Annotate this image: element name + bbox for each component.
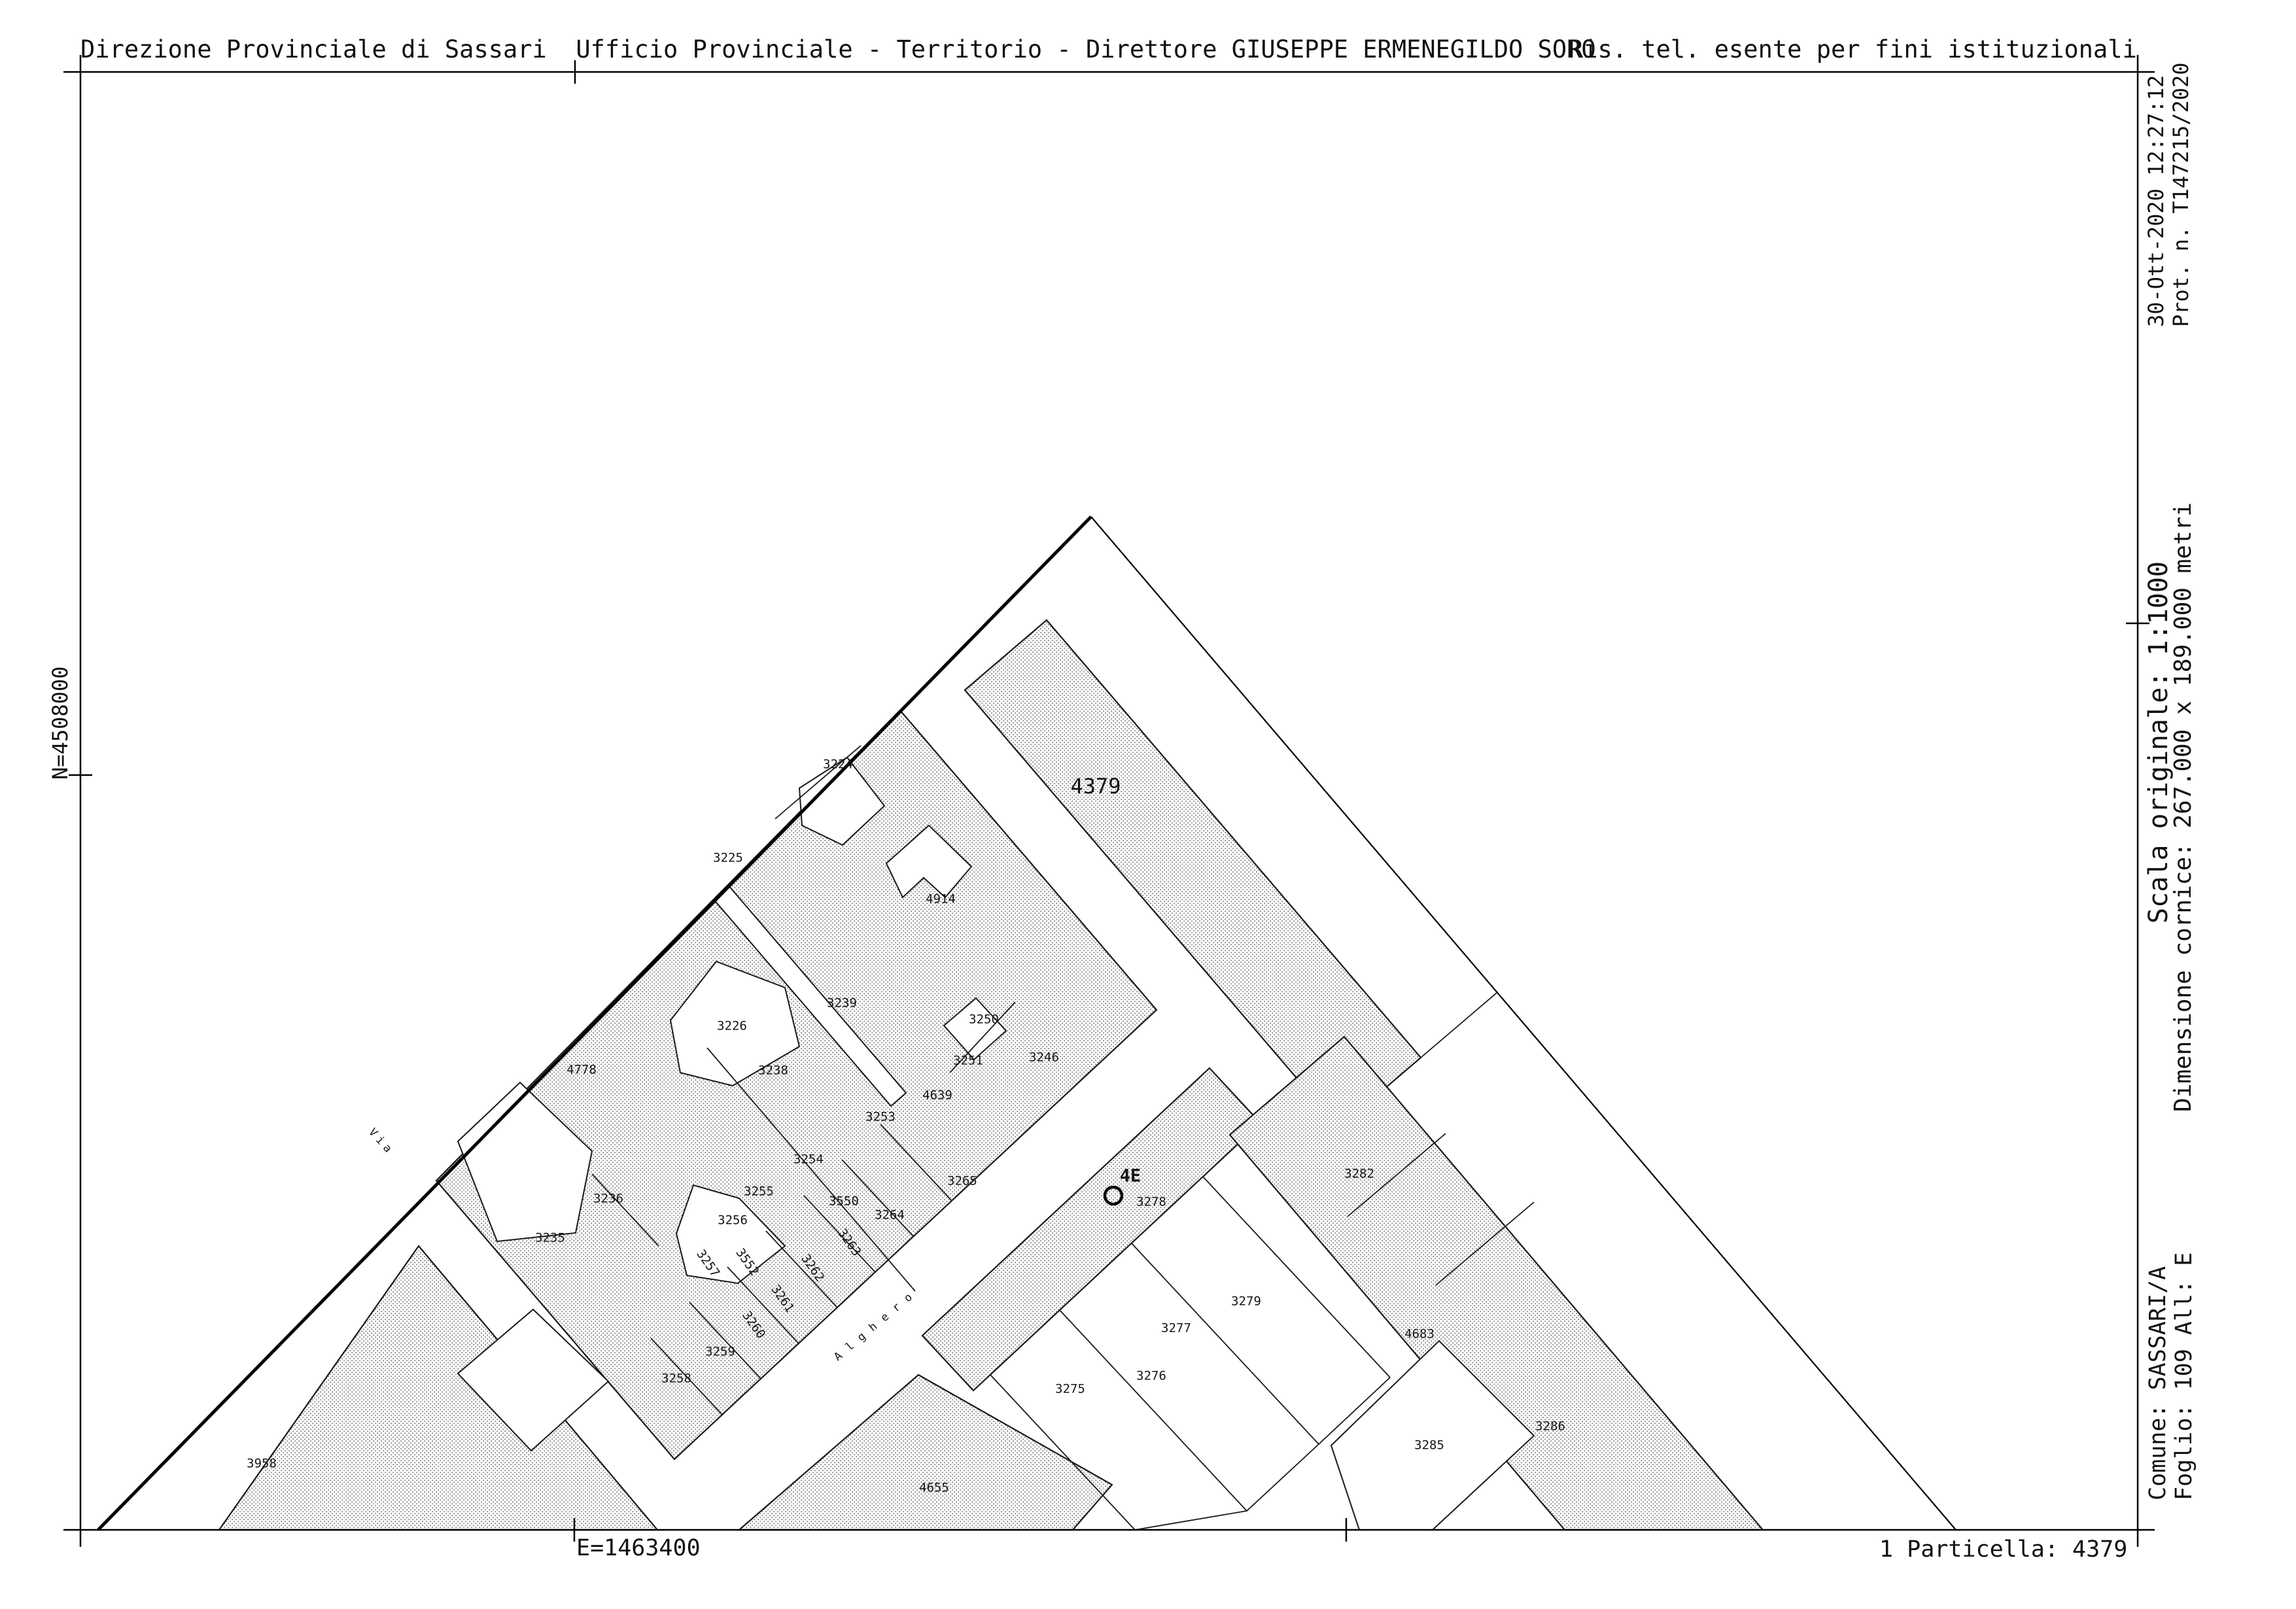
parcel-label-4778: 4778	[566, 1063, 597, 1077]
parcel-label-3254: 3254	[793, 1152, 824, 1167]
parcel-label-4379: 4379	[1070, 774, 1121, 799]
parcel-label-3225: 3225	[713, 851, 743, 865]
parcel-label-4E: 4E	[1120, 1166, 1141, 1186]
parcel-label-3285: 3285	[1414, 1438, 1444, 1453]
parcel-label-3277: 3277	[1161, 1321, 1191, 1336]
parcel-label-3246: 3246	[1029, 1050, 1059, 1065]
parcel-label-3278: 3278	[1136, 1195, 1166, 1209]
parcel-label-4639: 4639	[922, 1088, 952, 1103]
parcel-label-3276: 3276	[1136, 1369, 1166, 1383]
parcel-label-3235: 3235	[535, 1231, 565, 1245]
parcel-label-3286: 3286	[1535, 1419, 1565, 1434]
parcel-label-3275: 3275	[1055, 1382, 1085, 1396]
parcel-label-3226: 3226	[717, 1019, 747, 1033]
parcel-label-3256: 3256	[718, 1213, 748, 1228]
cadastral-extract-page: Direzione Provinciale di Sassari Ufficio…	[0, 0, 2296, 1609]
parcel-label-3550: 3550	[829, 1194, 859, 1209]
parcel-label-3236: 3236	[593, 1192, 623, 1206]
parcel-label-4683: 4683	[1404, 1327, 1435, 1341]
parcel-label-3224: 3224	[823, 757, 853, 772]
building-blocks	[219, 620, 1763, 1530]
parcel-label-3958: 3958	[247, 1457, 277, 1471]
parcel-label-3258: 3258	[661, 1372, 691, 1386]
parcel-label-3282: 3282	[1344, 1167, 1374, 1181]
parcel-label-4914: 4914	[926, 892, 956, 907]
parcel-label-3238: 3238	[758, 1064, 788, 1078]
street-label-Via: Via	[366, 1126, 396, 1158]
parcel-label-3265: 3265	[947, 1174, 977, 1188]
parcel-label-3255: 3255	[744, 1185, 774, 1199]
parcel-label-4655: 4655	[919, 1481, 949, 1495]
parcel-label-3251: 3251	[953, 1054, 983, 1068]
parcel-label-3259: 3259	[705, 1345, 735, 1359]
parcel-label-3253: 3253	[865, 1110, 896, 1124]
block-4655	[739, 1375, 1112, 1530]
cadastral-map: 3224322549143239325032263246325147783238…	[0, 0, 2296, 1609]
parcel-label-3239: 3239	[827, 996, 857, 1011]
parcel-label-3250: 3250	[969, 1012, 999, 1027]
parcel-label-3279: 3279	[1231, 1294, 1261, 1309]
parcel-label-3264: 3264	[875, 1208, 905, 1222]
